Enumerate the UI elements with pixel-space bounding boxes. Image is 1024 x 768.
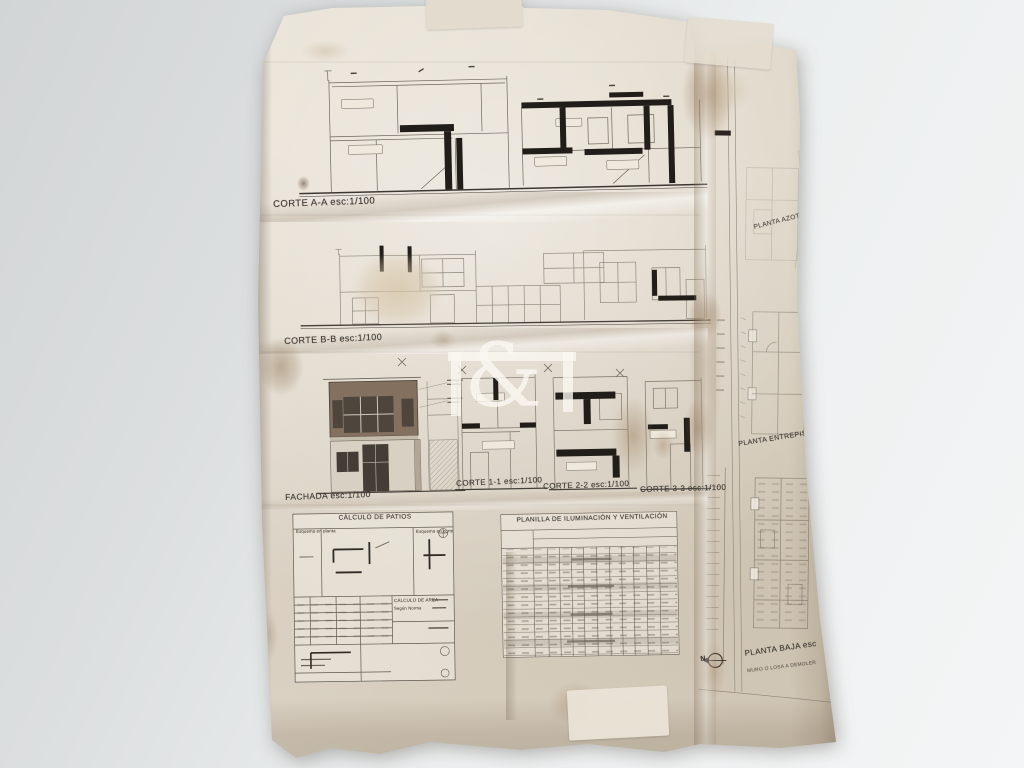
label-esquema-planta: Esquema en planta bbox=[296, 529, 336, 534]
stain bbox=[297, 176, 310, 191]
bottom-fold-shadow bbox=[256, 698, 840, 760]
corte-aa-drawing bbox=[297, 61, 708, 196]
stain bbox=[652, 430, 674, 460]
fachada-drawing bbox=[315, 376, 465, 493]
crease-vertical-small bbox=[506, 552, 522, 720]
stain bbox=[712, 70, 752, 110]
tape-top bbox=[425, 0, 522, 30]
paper-shadow-wrap: CORTE A-A esc:1/100 CORTE B-B esc:1/100 … bbox=[0, 0, 1024, 768]
stain bbox=[352, 252, 442, 327]
watermark-bar-right bbox=[563, 352, 573, 412]
stain bbox=[612, 398, 654, 472]
calculo-patios-table bbox=[293, 512, 455, 682]
stain bbox=[300, 40, 350, 62]
watermark-ampersand: & bbox=[464, 332, 542, 420]
label-calculo-area: CÁLCULO DE AREA bbox=[394, 598, 438, 603]
blueprint-paper: CORTE A-A esc:1/100 CORTE B-B esc:1/100 … bbox=[0, 0, 1024, 768]
tape-bottom bbox=[567, 685, 669, 740]
label-north: N bbox=[700, 655, 706, 663]
concrete-slabs bbox=[399, 91, 675, 191]
photo-of-blueprint: CORTE A-A esc:1/100 CORTE B-B esc:1/100 … bbox=[0, 0, 1024, 768]
right-strip-plans bbox=[699, 57, 842, 702]
tape-top-right bbox=[684, 16, 774, 69]
fold-vertical bbox=[694, 0, 716, 768]
watermark-bar-left bbox=[451, 352, 461, 416]
paper-right-edge-shadow bbox=[790, 0, 840, 768]
watermark-logo: & bbox=[448, 348, 580, 432]
label-segun-norma: Según Norma bbox=[394, 607, 422, 612]
paper-left-edge-shadow bbox=[258, 0, 272, 768]
label-esquema-corte: Esquema en corte bbox=[416, 529, 453, 534]
planilla-table bbox=[501, 511, 679, 657]
